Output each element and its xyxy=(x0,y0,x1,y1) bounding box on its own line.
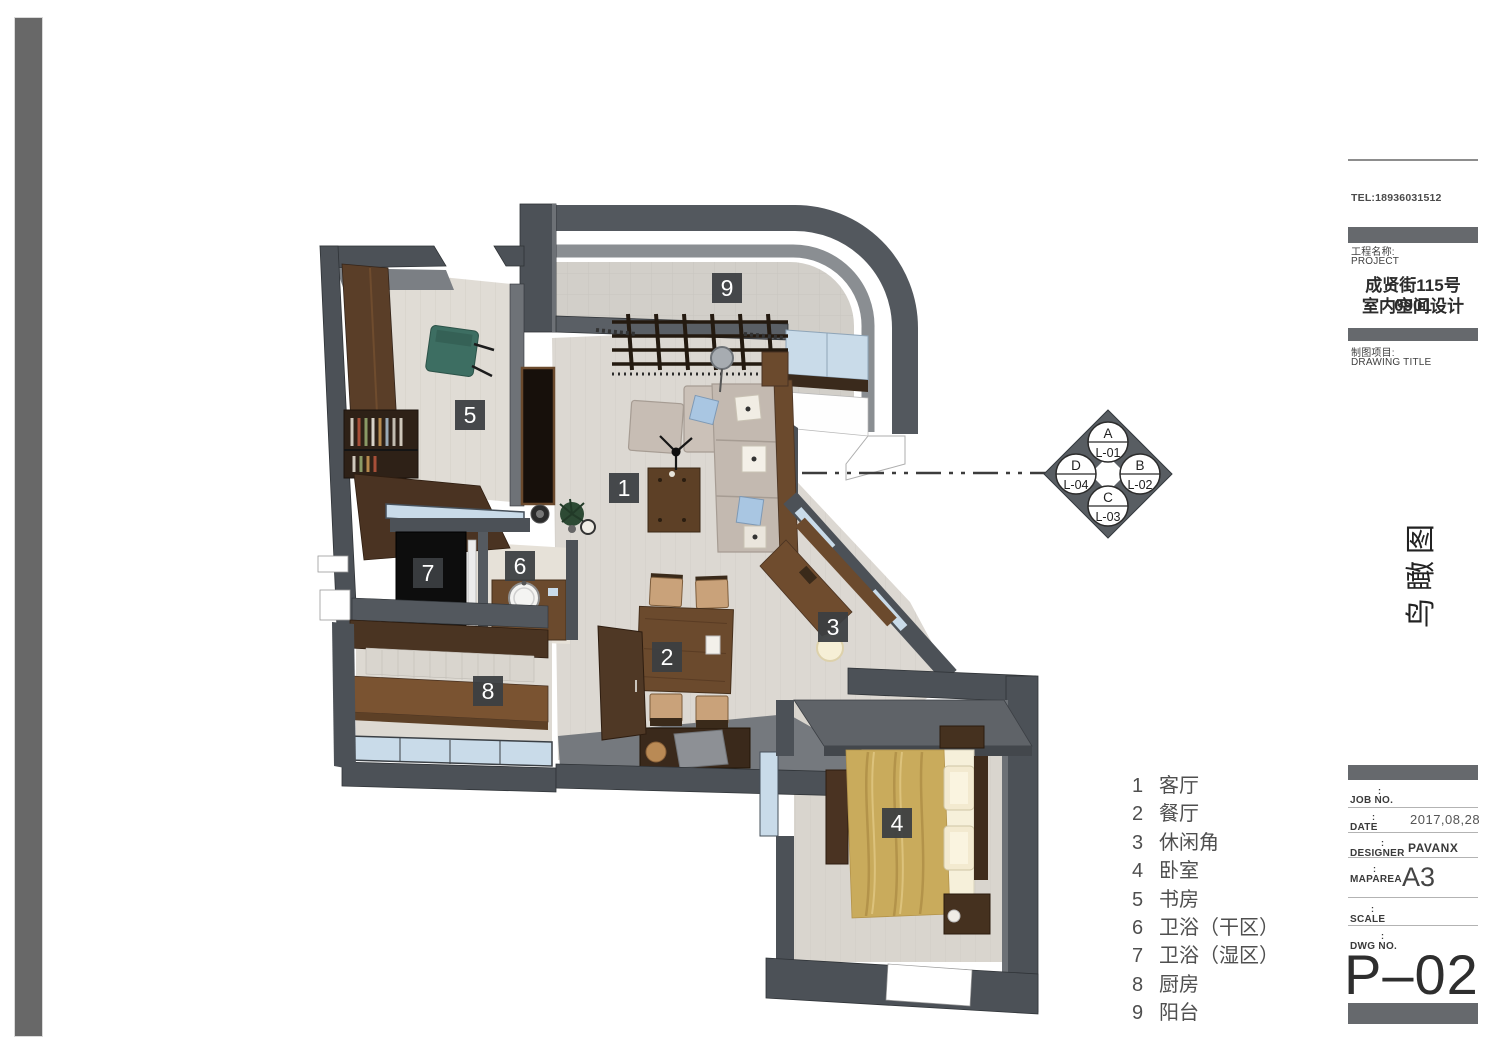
field-label-scale: SCALE xyxy=(1350,914,1385,925)
field-separator xyxy=(1348,857,1478,858)
level-code: L-03 xyxy=(1095,510,1120,524)
svg-text:1: 1 xyxy=(618,475,631,501)
coffee-table xyxy=(648,468,700,532)
legend-row: 7卫浴（湿区） xyxy=(1132,942,1279,970)
legend-name: 客厅 xyxy=(1159,772,1199,800)
drawing-title-vertical: 鸟瞰图 xyxy=(1396,517,1440,628)
project-label-en: PROJECT xyxy=(1351,256,1399,267)
titleblock-bar xyxy=(1348,765,1478,780)
svg-text:4: 4 xyxy=(891,810,904,836)
room-label-8: 8 xyxy=(473,676,503,706)
legend-row: 8厨房 xyxy=(1132,971,1279,999)
legend-row: 1客厅 xyxy=(1132,772,1279,800)
level-diamond-legend: A L-01 B L-02 C L-03 D L-04 xyxy=(1044,410,1172,538)
room-label-3: 3 xyxy=(818,612,848,642)
room-label-1: 1 xyxy=(609,473,639,503)
legend-row: 2餐厅 xyxy=(1132,800,1279,828)
legend-name: 厨房 xyxy=(1159,971,1199,999)
designer-value: PAVANX xyxy=(1408,841,1458,855)
svg-text:8: 8 xyxy=(482,678,495,704)
svg-text:5: 5 xyxy=(464,402,477,428)
legend-num: 3 xyxy=(1132,829,1150,857)
titleblock-bar xyxy=(1348,328,1478,341)
svg-text:2: 2 xyxy=(661,644,674,670)
legend-row: 5书房 xyxy=(1132,886,1279,914)
svg-text:6: 6 xyxy=(514,553,527,579)
titleblock-top-rule xyxy=(1348,159,1478,161)
room-label-4: 4 xyxy=(882,808,912,838)
field-colon: : xyxy=(1381,838,1384,848)
legend-name: 书房 xyxy=(1159,886,1199,914)
drawing-label-en: DRAWING TITLE xyxy=(1351,357,1431,368)
clock xyxy=(581,520,595,534)
legend-name: 卧室 xyxy=(1159,857,1199,885)
bedroom-window xyxy=(760,752,778,836)
room-label-2: 2 xyxy=(652,642,682,672)
field-label-jobno: JOB NO. xyxy=(1350,795,1393,806)
level-code: L-02 xyxy=(1127,478,1152,492)
field-colon: : xyxy=(1372,812,1375,822)
field-colon: : xyxy=(1381,931,1384,941)
floor-lamp xyxy=(711,347,733,369)
room-label-9: 9 xyxy=(712,273,742,303)
legend-row: 9阳台 xyxy=(1132,999,1279,1027)
legend-name: 卫浴（湿区） xyxy=(1159,942,1279,970)
room-legend-list: 1客厅 2餐厅 3休闲角 4卧室 5书房 6卫浴（干区） 7卫浴（湿区） 8厨房… xyxy=(1132,772,1279,1028)
level-code: L-04 xyxy=(1063,478,1088,492)
drawing-number: P–02 xyxy=(1344,942,1479,1007)
level-letter: D xyxy=(1071,458,1081,473)
tel-text: TEL:18936031512 xyxy=(1351,192,1442,204)
nightstand xyxy=(940,726,984,748)
legend-name: 餐厅 xyxy=(1159,800,1199,828)
level-letter: B xyxy=(1135,458,1144,473)
titleblock-bar xyxy=(1348,227,1478,243)
field-label-maparea: MAPAREA xyxy=(1350,874,1402,885)
level-code: L-01 xyxy=(1095,446,1120,460)
legend-name: 卫浴（干区） xyxy=(1159,914,1279,942)
room-label-7: 7 xyxy=(413,558,443,588)
svg-text:7: 7 xyxy=(422,560,435,586)
legend-name: 休闲角 xyxy=(1159,829,1219,857)
level-letter: A xyxy=(1103,426,1112,441)
titleblock-bar xyxy=(1348,1003,1478,1024)
legend-row: 4卧室 xyxy=(1132,857,1279,885)
field-separator xyxy=(1348,807,1478,808)
svg-text:9: 9 xyxy=(721,275,734,301)
entry-cabinet xyxy=(598,626,646,740)
legend-num: 2 xyxy=(1132,800,1150,828)
legend-row: 6卫浴（干区） xyxy=(1132,914,1279,942)
legend-num: 6 xyxy=(1132,914,1150,942)
legend-num: 7 xyxy=(1132,942,1150,970)
foot-bench xyxy=(826,770,848,864)
wardrobe-canopy xyxy=(794,700,1032,746)
project-name-line2: 室内空间设计 xyxy=(1348,292,1478,317)
maparea-value: A3 xyxy=(1402,862,1435,893)
drawing-sheet: A L-01 B L-02 C L-03 D L-04 1 2 3 4 5 6 … xyxy=(0,0,1500,1061)
legend-num: 4 xyxy=(1132,857,1150,885)
legend-num: 1 xyxy=(1132,772,1150,800)
legend-num: 8 xyxy=(1132,971,1150,999)
svg-text:3: 3 xyxy=(827,614,840,640)
level-letter: C xyxy=(1103,490,1113,505)
field-colon: : xyxy=(1373,864,1376,874)
field-separator xyxy=(1348,925,1478,926)
room-label-5: 5 xyxy=(455,400,485,430)
legend-num: 5 xyxy=(1132,886,1150,914)
field-separator xyxy=(1348,832,1478,833)
legend-num: 9 xyxy=(1132,999,1150,1027)
date-value: 2017,08,28 xyxy=(1410,812,1480,827)
legend-name: 阳台 xyxy=(1159,999,1199,1027)
field-separator xyxy=(1348,897,1478,898)
room-label-6: 6 xyxy=(505,551,535,581)
field-colon: : xyxy=(1371,904,1374,914)
green-chair xyxy=(425,325,479,377)
legend-row: 3休闲角 xyxy=(1132,829,1279,857)
